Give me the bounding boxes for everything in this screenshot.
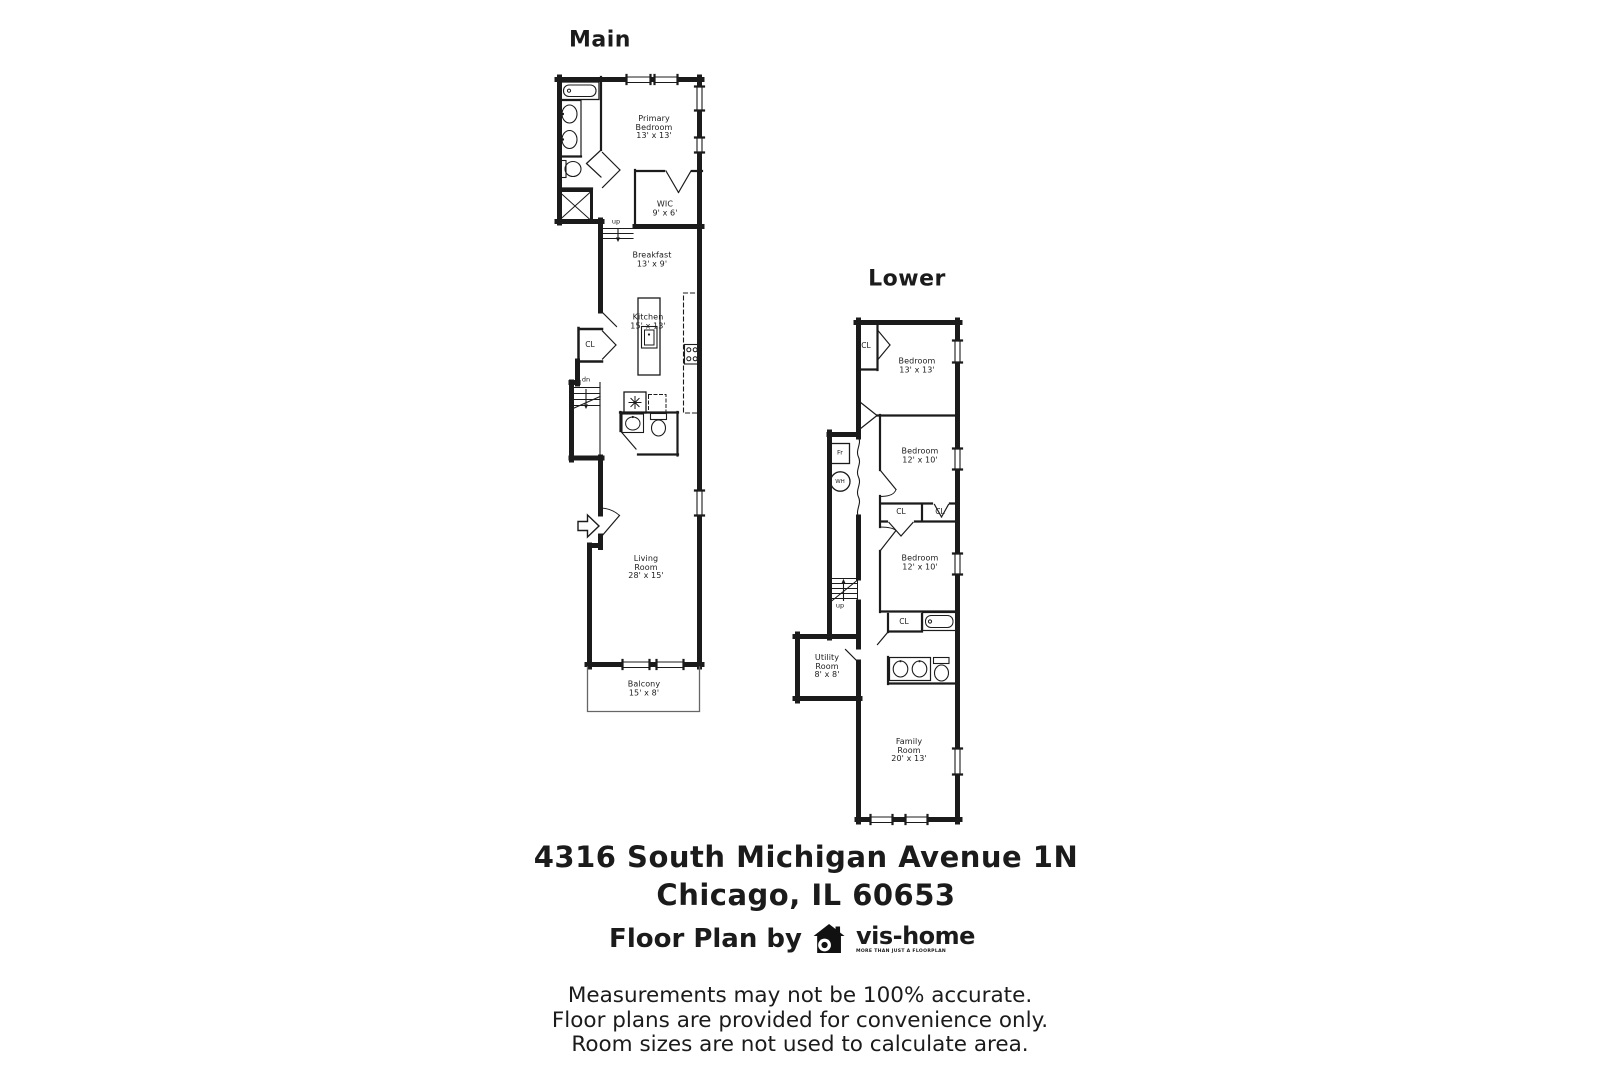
lower-stairs-up-icon bbox=[831, 578, 858, 602]
window-marker bbox=[694, 86, 705, 111]
closet-label: CL bbox=[861, 342, 870, 350]
room-label-utility-room: Utility Room 8' x 8' bbox=[807, 654, 847, 680]
lower-floor-plan bbox=[795, 320, 963, 825]
room-dims: 13' x 9' bbox=[620, 260, 684, 269]
room-label-balcony: Balcony 15' x 8' bbox=[609, 680, 679, 697]
floor-plan-page: Main Lower Primary Bedroom 13' x 13' WIC… bbox=[0, 0, 1620, 1080]
window-marker bbox=[626, 74, 651, 85]
entry-arrow-icon bbox=[578, 515, 599, 537]
window-marker bbox=[952, 340, 963, 363]
disclaimer-line: Room sizes are not used to calculate are… bbox=[552, 1033, 1048, 1058]
room-label-living-room: Living Room 28' x 15' bbox=[623, 555, 669, 581]
room-name: Family Room bbox=[886, 738, 932, 755]
room-dims: 9' x 6' bbox=[635, 209, 695, 218]
window-marker bbox=[952, 448, 963, 470]
window-marker bbox=[694, 137, 705, 153]
disclaimer: Measurements may not be 100% accurate. F… bbox=[552, 984, 1048, 1058]
floor-plan-canvas bbox=[0, 0, 1620, 1080]
address-line-2: Chicago, IL 60653 bbox=[656, 878, 955, 912]
lower-bathtub-icon bbox=[923, 613, 957, 631]
disclaimer-line: Measurements may not be 100% accurate. bbox=[552, 984, 1048, 1009]
window-marker bbox=[905, 814, 928, 825]
closet-label: CL bbox=[585, 341, 594, 349]
window-marker bbox=[870, 814, 893, 825]
shower-icon bbox=[559, 191, 592, 222]
room-label-bedroom-bottom: Bedroom 12' x 10' bbox=[890, 554, 950, 571]
room-dims: 28' x 15' bbox=[623, 572, 669, 581]
room-dims: 13' x 13' bbox=[887, 366, 947, 375]
flex-wall-squiggle bbox=[857, 437, 859, 517]
powder-room-fixtures bbox=[622, 414, 667, 437]
window-marker bbox=[654, 74, 678, 85]
window-marker bbox=[694, 490, 705, 516]
stairs-up-icon bbox=[603, 229, 633, 243]
disclaimer-line: Floor plans are provided for convenience… bbox=[552, 1009, 1048, 1034]
room-name: Utility Room bbox=[807, 654, 847, 671]
closet-label: CL bbox=[899, 618, 908, 626]
lower-interior-walls bbox=[858, 322, 958, 684]
window-marker bbox=[952, 748, 963, 775]
main-floor-plan bbox=[557, 74, 705, 712]
room-name: Living Room bbox=[623, 555, 669, 572]
lower-floor-title: Lower bbox=[868, 267, 946, 292]
room-dims: 15' x 13' bbox=[618, 322, 678, 331]
lower-toilet-icon bbox=[934, 658, 950, 682]
room-dims: 13' x 13' bbox=[629, 132, 679, 141]
room-label-breakfast: Breakfast 13' x 9' bbox=[620, 251, 684, 268]
kitchen-island bbox=[638, 298, 660, 375]
room-dims: 12' x 10' bbox=[890, 563, 950, 572]
fridge-icon bbox=[624, 392, 666, 413]
vanity-sinks-icon bbox=[559, 100, 581, 156]
logo-brand-text: vis-home bbox=[856, 924, 975, 948]
room-label-wic: WIC 9' x 6' bbox=[635, 200, 695, 217]
closet-label: CL bbox=[935, 508, 944, 516]
room-label-bedroom-mid: Bedroom 12' x 10' bbox=[890, 447, 950, 464]
address-line-1: 4316 South Michigan Avenue 1N bbox=[534, 840, 1079, 874]
closet-label: CL bbox=[896, 508, 905, 516]
room-name: Primary Bedroom bbox=[629, 115, 679, 132]
room-label-kitchen: Kitchen 15' x 13' bbox=[618, 313, 678, 330]
main-floor-title: Main bbox=[569, 28, 631, 53]
room-dims: 20' x 13' bbox=[886, 755, 932, 764]
stairs-up-label: up bbox=[836, 603, 844, 610]
room-dims: 15' x 8' bbox=[609, 689, 679, 698]
window-marker bbox=[952, 553, 963, 575]
window-marker bbox=[622, 659, 650, 670]
window-marker bbox=[656, 659, 684, 670]
lower-vanity-sinks-icon bbox=[890, 658, 931, 681]
room-label-bedroom-top: Bedroom 13' x 13' bbox=[887, 357, 947, 374]
water-heater-label: WH bbox=[835, 479, 845, 485]
furnace-label: Fr bbox=[837, 450, 843, 457]
credit-prefix: Floor Plan by bbox=[609, 924, 802, 954]
room-dims: 12' x 10' bbox=[890, 456, 950, 465]
floor-plan-credit: Floor Plan by vis-home MORE THAN JUST A … bbox=[609, 923, 975, 955]
stairs-down-icon bbox=[572, 388, 600, 410]
room-label-primary-bedroom: Primary Bedroom 13' x 13' bbox=[629, 115, 679, 141]
room-dims: 8' x 8' bbox=[807, 671, 847, 680]
logo-tagline: MORE THAN JUST A FLOORPLAN bbox=[856, 950, 946, 955]
primary-bathtub-icon bbox=[561, 82, 600, 100]
room-label-family-room: Family Room 20' x 13' bbox=[886, 738, 932, 764]
stairs-up-label: up bbox=[612, 219, 620, 226]
house-camera-icon bbox=[811, 923, 847, 955]
toilet-icon bbox=[560, 161, 582, 178]
stairs-down-label: dn bbox=[582, 377, 590, 384]
logo-text-block: vis-home MORE THAN JUST A FLOORPLAN bbox=[856, 924, 975, 955]
